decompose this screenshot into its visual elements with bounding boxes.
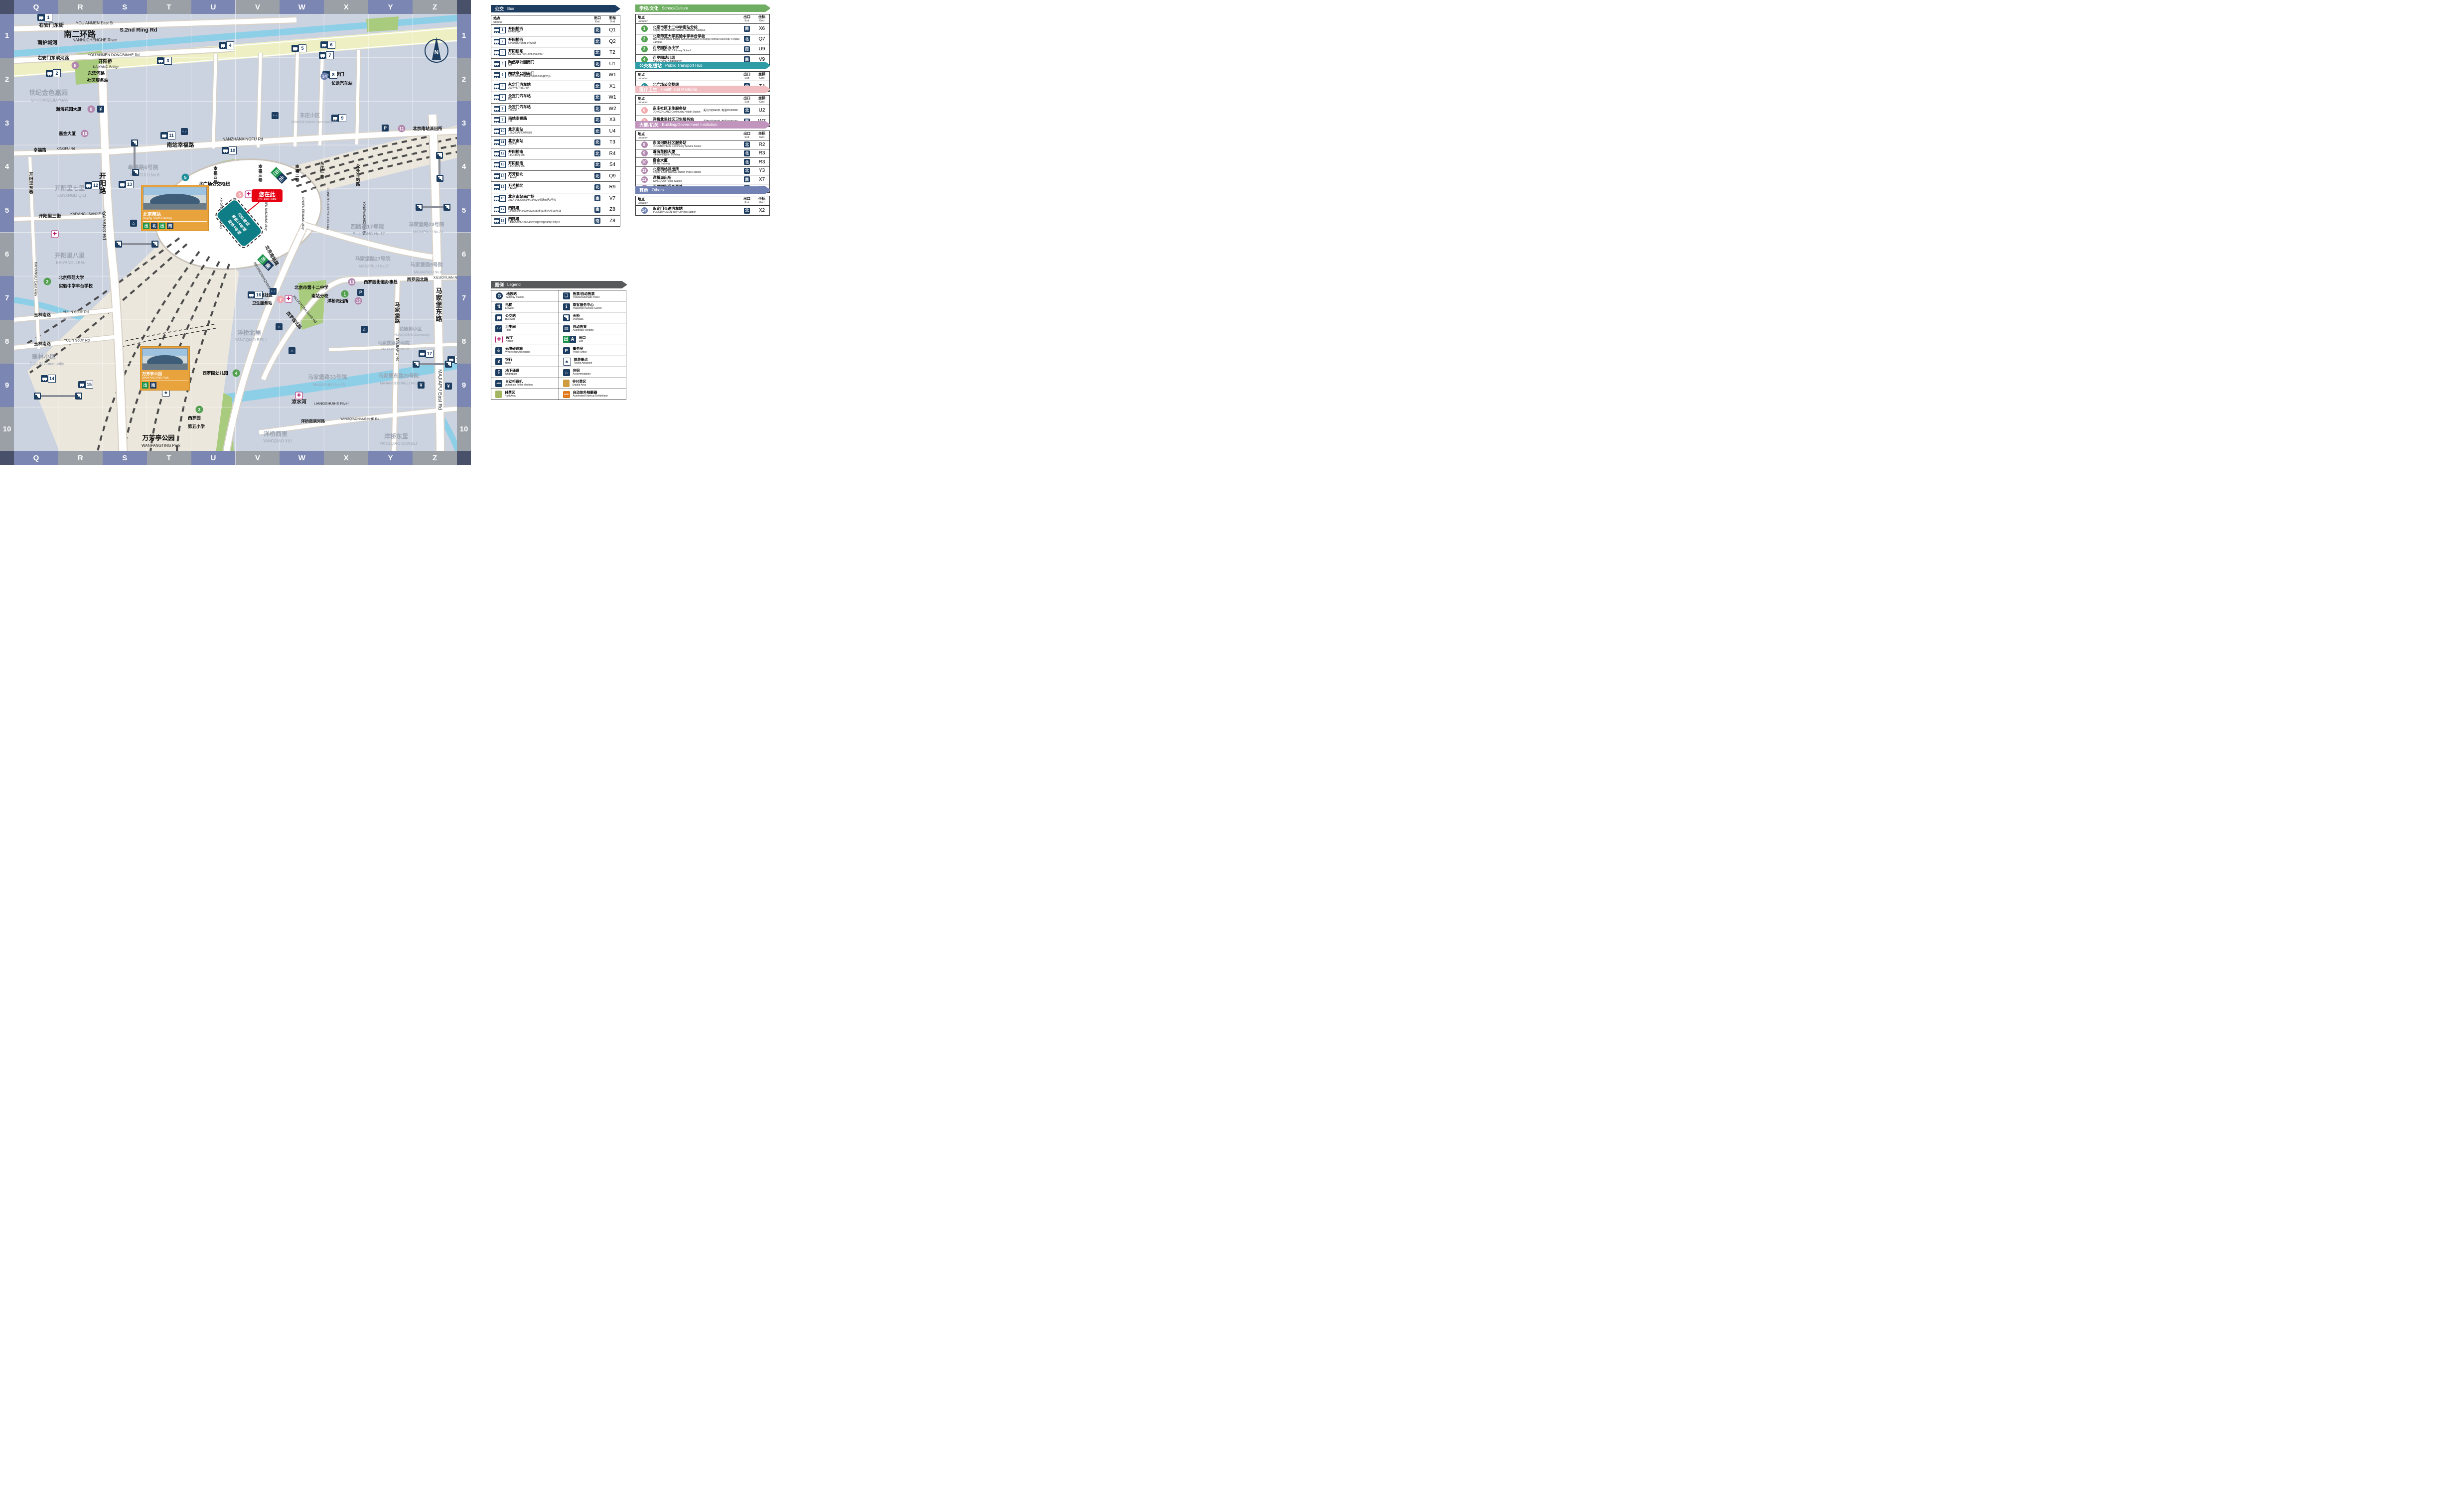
bus-routes: 106 (508, 121, 590, 124)
facility-row-2: 2北京师范大学实验中学丰台学校The Experimental Middle S… (636, 34, 769, 45)
table-school: 地点Location出口Exit坐标Grid1北京市第十二中学南站分校Beiji… (635, 14, 770, 65)
grid-letter-S-bottom: S (103, 451, 147, 465)
bus-row-number: 8 (499, 106, 506, 112)
legend-label-en: Tourist Attraction (574, 362, 592, 365)
bus-row-1: 1开阳桥西62/458/夜4北Q1 (491, 25, 620, 36)
grid-number-10-right: 10 (457, 407, 471, 451)
legend-label-en: Health (506, 340, 513, 343)
map-label: 实验中学丰台学校 (59, 284, 93, 288)
bus-stop-number: 4 (226, 41, 234, 49)
grid-code: U4 (605, 129, 620, 134)
bus-stop-number: 3 (164, 57, 172, 65)
legend-label-en: Bank (505, 362, 512, 365)
grid-code: U1 (605, 61, 620, 67)
legend-text: 出口Exit (579, 336, 586, 343)
map-label: 马家堡路8号院 (410, 263, 443, 268)
overpass-icon (443, 204, 450, 211)
grid-code: R2 (754, 142, 769, 147)
bus-glyph-icon (494, 173, 499, 179)
legend-label-en: Bus Stop (505, 318, 516, 321)
facility-name-en: XILUOYUAN No.5 Primary School (653, 50, 739, 53)
bus-routes: 381/485 (508, 143, 590, 146)
exit-direction-badge: 北 (744, 159, 750, 165)
bus-row-number: 15 (499, 184, 506, 190)
legend-label-en: Exit (579, 340, 586, 343)
map-label: 马家堡路23号院 (409, 223, 444, 228)
grid-code: Q1 (605, 27, 620, 33)
bus-title-cn: 公交 (495, 5, 504, 12)
overpass-icon (445, 361, 452, 368)
legend-text: 银行Bank (505, 358, 512, 365)
legend-label-en: Automatic Vending (573, 329, 594, 332)
medical-icon: ✚ (295, 392, 303, 400)
you-are-here-callout: 您在此 YOU ARE HERE (252, 189, 283, 202)
bus-stop-icon-6: 6 (320, 41, 335, 49)
map-label: 洋桥西里 (264, 431, 288, 437)
facility-marker: 6 (641, 107, 648, 114)
overpass-link (119, 243, 155, 245)
map-label: SHIJIJINSEJIAYUAN (31, 99, 68, 103)
grid-code: W2 (605, 106, 620, 112)
grid-number-3-left: 3 (0, 101, 14, 145)
exit-direction-badge: 南 (594, 207, 600, 213)
bus-row-number: 4 (499, 61, 506, 67)
exit-direction-badge: 北 (594, 38, 600, 44)
legend-item-elevator: ⇅电梯Elevator (491, 301, 559, 312)
bus-glyph-icon (494, 61, 499, 67)
bus-stop-icon-11: 11 (160, 132, 175, 139)
bus-row-16: 16北京南站南广场343/414/529/665/专18/夜24/机场大巴2号线… (491, 193, 620, 205)
table-others: 地点Location出口Exit坐标Grid14永定门长途汽车站YONGDING… (635, 196, 770, 216)
grid-code: V9 (754, 57, 769, 62)
grid-code: R9 (605, 184, 620, 190)
bus-routes: 106/458 (508, 110, 590, 113)
legend-item-tickets: ❏售票/自动售票Tickets/Automatic Ticket (559, 290, 626, 301)
legend-text: 警务室Police Office (573, 347, 587, 354)
map-label: S.2nd Ring Rd (120, 28, 157, 33)
bus-routes: 200外/377/381/454 (508, 87, 590, 90)
bus-stop-icon-9: 9 (331, 114, 346, 122)
grid-letter-Z-top: Z (413, 0, 457, 14)
bed-icon: ⌂ (276, 323, 283, 330)
facility-marker: 11 (641, 167, 648, 174)
section-header-building: 大厦/机关Building/Government Institution (635, 121, 770, 129)
police-icon: P (382, 125, 389, 132)
bus-row-7: 7永定门汽车站849北W1 (491, 92, 620, 104)
callout-title-cn: 万芳亭公园 (142, 371, 188, 377)
grid-number-6-left: 6 (0, 233, 14, 276)
aed-icon: AED (563, 391, 570, 398)
bus-table: 站点Station出口Exit坐标Grid1开阳桥西62/458/夜4北Q12开… (491, 15, 620, 227)
bus-row-number: 6 (499, 83, 506, 90)
bus-glyph-icon (494, 117, 499, 123)
bus-glyph-icon (419, 350, 426, 357)
map-label: MAJIAPUDONGLU No.29 (380, 382, 421, 386)
legend-label-en: Unpaid Area (573, 384, 586, 387)
map-label: 瀚海花园大厦 (56, 107, 81, 112)
legend-item-wheelchair: ♿无障碍设施Wheelchair Accessible (491, 345, 559, 356)
overpass-icon (131, 139, 138, 146)
legend-item-atm: ATM自动柜员机Automatic Teller Machine (491, 378, 559, 389)
bus-row-13: 13开阳桥南144/485/专155北S4 (491, 159, 620, 171)
map-label: MAJIAPULU No.68 (381, 348, 409, 352)
legend-item-attraction: ♣旅游景点Tourist Attraction (559, 356, 626, 367)
map-label: 幸福三巷 (258, 164, 262, 182)
bus-glyph-icon (222, 147, 229, 154)
map-label: 西罗园北路 (407, 277, 429, 282)
grid-code: X6 (754, 26, 769, 31)
grid-code: S4 (605, 162, 620, 167)
grid-letter-R-top: R (58, 0, 103, 14)
exit-direction-badge: 北 (594, 184, 600, 190)
exit-direction-badge: 北 (744, 150, 750, 156)
legend-text: 电梯Elevator (505, 303, 514, 310)
grid-code: Z8 (605, 218, 620, 224)
grid-code: X2 (754, 208, 769, 213)
map-label: 凉水河 (291, 400, 306, 405)
facility-marker: 12 (641, 176, 648, 183)
grid-number-5-right: 5 (457, 189, 471, 233)
bus-row-number: 12 (499, 150, 506, 157)
map-label: YULIN South Rd (64, 339, 90, 343)
service-icon: ℹ (563, 303, 570, 310)
map-panel: 地铁4号线 地铁14号线 北京南站 您在此 YOU ARE HERE N 出EX… (0, 0, 471, 465)
grid-number-7-right: 7 (457, 276, 471, 320)
map-label: DONGZHUANG YIXIANG Alley (326, 188, 329, 230)
bus-row-number: 5 (499, 72, 506, 78)
map-label: 长途汽车站 (331, 81, 353, 86)
facility-row-1: 1北京市第十二中学南站分校Beijing No.12 Middle School… (636, 24, 769, 34)
legend-text: 地铁站Subway Station (506, 292, 524, 299)
exit-direction-badge: 南 (744, 26, 750, 32)
bus-stop-number: 5 (298, 44, 306, 52)
map-label: 花椒树小区 (399, 327, 422, 332)
bank-icon: ¥ (445, 383, 452, 390)
bus-stop-number: 14 (48, 375, 56, 383)
bus-stop-number: 16 (255, 291, 263, 299)
grid-number-8-right: 8 (457, 320, 471, 364)
exit-direction-badge: 北 (744, 108, 750, 114)
poi-marker-10: 10 (81, 130, 89, 137)
bus-stop-number: 15 (85, 381, 93, 389)
bus-glyph-icon (494, 72, 499, 78)
bed-icon: ⌂ (563, 369, 570, 376)
bus-stop-number: 2 (53, 69, 61, 77)
grid-code: Q2 (605, 39, 620, 44)
map-label: CUILIN Community (30, 362, 64, 366)
bus-routes: 144/485/专155 (508, 154, 590, 157)
bus-glyph-icon (494, 218, 499, 224)
legend-item-subway: G地铁站Subway Station (491, 290, 559, 301)
atm-icon: ATM (495, 380, 502, 387)
toilet-icon: ♀♂ (272, 112, 279, 119)
map-label: 马家堡东路 (435, 287, 442, 322)
station-area-map-poster: 地铁4号线 地铁14号线 北京南站 您在此 YOU ARE HERE N 出EX… (0, 0, 770, 465)
poi-marker-14: 14 (321, 73, 328, 80)
overpass-icon (132, 169, 139, 176)
bus-row-number: 7 (499, 94, 506, 101)
facility-name-en: JIAJIN Building (653, 163, 739, 166)
exit-direction-badge: 南 (594, 218, 600, 224)
facility-name-en: DONGBINHELU Community Service Center (653, 145, 739, 148)
legend-label-en: Overpass (573, 318, 583, 321)
bus-glyph-icon (494, 129, 499, 134)
legend-title-cn: 图例 (495, 281, 504, 288)
bus-routes: 50/62/90/122/414/485/692/997/夜20外 (508, 76, 590, 79)
bus-glyph-icon (46, 70, 53, 77)
bus-row-number: 13 (499, 161, 506, 168)
legend-item-aed: AED自动体外除颤器Automated External Defibrillat… (559, 389, 626, 400)
bus-stop-icon-3: 3 (157, 57, 172, 65)
exit-direction-badge: 北 (594, 72, 600, 78)
bus-glyph-icon (494, 50, 499, 55)
subway-icon: G (495, 292, 503, 300)
legend-text: 自动售货Automatic Vending (573, 325, 594, 332)
exit-direction-badge: 南 (594, 195, 600, 201)
grid-code: U9 (754, 46, 769, 52)
grid-letter-W-top: W (280, 0, 324, 14)
legend-text: 付费区Paid Area (505, 391, 516, 398)
facility-row-9: 9瀚海花园大厦Hanhaihuayuan Building北R3 (636, 149, 769, 158)
unpaid-area-icon (563, 380, 570, 387)
bus-row-10: 10北京南站106/200内/200外/381北U4 (491, 126, 620, 137)
map-label: 万芳亭公园 (142, 435, 174, 441)
overpass-link (419, 206, 447, 208)
map-label: 玉林南路 (34, 342, 51, 346)
bank-icon: ¥ (97, 106, 104, 113)
map-label: 幸福路 (33, 148, 46, 152)
legend-item-bus: 公交站Bus Stop (491, 312, 559, 323)
grid-code: R3 (754, 150, 769, 156)
grid-code: Y3 (754, 168, 769, 173)
bus-station-name: 永定门汽车站 (508, 105, 590, 110)
legend-title-en: Legend (507, 282, 521, 287)
legend-label-en: Passenger Service Center (573, 307, 602, 310)
callout-title-en: Beijing South Railway (143, 217, 207, 222)
facility-row-3: 3西罗园第五小学XILUOYUAN No.5 Primary School南U9 (636, 44, 769, 55)
grid-number-1-left: 1 (0, 14, 14, 58)
facility-row-14: 14永定门长途汽车站YONGDINGMEN Inter-City Bus Sta… (636, 206, 769, 215)
map-label: 马家堡路33号院 (308, 375, 347, 381)
bus-glyph-icon (494, 207, 499, 212)
map-label: 北京南站派出所 (413, 127, 442, 131)
bus-stop-icon-14: 14 (41, 375, 56, 383)
grid-letter-T-top: T (147, 0, 191, 14)
grid-letter-Q-top: Q (14, 0, 58, 14)
grid-code: X7 (754, 177, 769, 182)
police-icon: P (357, 289, 364, 296)
poi-marker-7: 7 (277, 296, 285, 303)
bank-icon: ¥ (495, 358, 502, 365)
station-photo (143, 187, 207, 210)
bus-station-name: 陶然亭公园南门 (508, 60, 590, 65)
medical-icon: ✚ (51, 231, 59, 238)
facility-row-11: 11北京南站派出所Beijing South Railway Station P… (636, 167, 769, 176)
bus-routes: 14/40/50/66/102/343/529/夜23/夜24/专13/专18 (508, 222, 590, 225)
map-label: 马家堡东路29号院 (378, 374, 419, 379)
grid-code: X1 (605, 84, 620, 89)
facility-marker: 2 (641, 36, 648, 42)
map-label: 西罗园幼儿园 (202, 371, 228, 376)
facility-marker: 3 (641, 46, 648, 52)
map-label: 开阳里三街 (38, 214, 61, 219)
vending-icon: ▤ (563, 325, 570, 332)
grid-number-4-left: 4 (0, 145, 14, 189)
bus-glyph-icon (219, 42, 226, 49)
grid-number-2-right: 2 (457, 58, 471, 102)
map-label: 四路通17号院 (350, 225, 384, 230)
legend-label-en: Paid Area (505, 395, 516, 398)
bus-stop-number: 6 (327, 41, 335, 49)
beijing-south-railway-photo-callout: 北京南站 Beijing South Railway 出北 出南 (141, 185, 209, 231)
grid-code: V7 (605, 196, 620, 201)
grid-letter-X-bottom: X (324, 451, 368, 465)
facility-marker: 14 (641, 207, 648, 214)
bus-routes: 144/485 (508, 188, 590, 191)
attraction-icon: ♣ (563, 358, 571, 366)
legend-label-en: Wheelchair Accessible (505, 351, 530, 354)
legend-item-overpass: 天桥Overpass (559, 312, 626, 323)
map-label: XINGFU Rd (56, 147, 75, 151)
grid-code: U2 (754, 108, 769, 113)
facility-name-en: YANGQIAO Police Station (653, 180, 739, 183)
grid-letter-U-top: U (191, 0, 236, 14)
bus-column-headers: 站点Station出口Exit坐标Grid (491, 15, 620, 25)
map-label: KAIYANG Rd (101, 210, 106, 240)
bus-row-9: 9南站幸福路106北X3 (491, 115, 620, 126)
bus-glyph-icon (494, 84, 499, 89)
legend-label-en: Accommodation (573, 373, 591, 376)
grid-number-1-right: 1 (457, 14, 471, 58)
bus-row-11: 11北京南站381/485北T3 (491, 137, 620, 148)
map-border-corner (457, 451, 471, 465)
grid-number-3-right: 3 (457, 101, 471, 145)
map-label: 马家堡路 (394, 302, 399, 324)
section-header-health: 医疗卫生Health and Medicine (635, 86, 770, 93)
wheelchair-icon: ♿ (495, 347, 502, 354)
poi-marker-5: 5 (182, 174, 189, 181)
underpass-icon: ↧ (495, 369, 502, 376)
bus-stop-number: 11 (167, 132, 175, 139)
legend-item-bank: ¥银行Bank (491, 356, 559, 367)
medical-icon: ✚ (285, 295, 292, 303)
map-label: 洋桥北里 (237, 330, 261, 336)
bed-icon: ⌂ (361, 326, 368, 333)
facility-note: 距北口约640米, 电话83109908 (704, 109, 739, 112)
bus-routes: 144/485 (508, 177, 590, 180)
exit-direction-badge: 北 (594, 27, 600, 33)
bus-glyph-icon (494, 196, 499, 201)
bus-station-name: 永定门汽车站 (508, 94, 590, 99)
grid-letter-S-top: S (103, 0, 147, 14)
legend-text: 公交站Bus Stop (505, 314, 516, 321)
map-label: 南二环路 (64, 31, 96, 39)
map-label: YOU'ANMEN East St (76, 21, 114, 25)
bus-glyph-icon (78, 381, 85, 388)
bus-row-17: 17四路通14/50/66/343/529/652/665/夜23/夜24/专1… (491, 204, 620, 216)
map-label: KAIYANGLI BALI (56, 261, 86, 265)
poi-marker-2: 2 (44, 278, 51, 285)
bus-stop-icon-5: 5 (291, 44, 306, 52)
exit-direction-badge: 北 (744, 36, 750, 42)
exit-direction-badge: 北 (594, 139, 600, 145)
bus-row-number: 17 (499, 206, 506, 213)
legend-item-underpass: ↧地下通道Underpass (491, 367, 559, 378)
facility-row-8: 8东滨河路社区服务站DONGBINHELU Community Service … (636, 140, 769, 149)
bus-stop-number: 17 (426, 350, 434, 358)
legend-table: G地铁站Subway Station⇅电梯Elevator公交站Bus Stop… (491, 290, 626, 400)
overpass-icon (436, 175, 443, 182)
exit-direction-badge: 北 (594, 50, 600, 56)
bus-glyph-icon (331, 115, 338, 122)
legend-text: 住宿Accommodation (573, 369, 591, 376)
grid-letter-Q-bottom: Q (14, 451, 58, 465)
bus-stop-number: 1 (44, 13, 52, 21)
bank-icon: ¥ (418, 382, 425, 389)
legend-item-vending: ▤自动售货Automatic Vending (559, 323, 626, 334)
map-label: YANGQIAONANBINHE Rd (340, 418, 379, 421)
facility-name-en: Beijing South Railway Station Police Sta… (653, 171, 739, 174)
grid-number-8-left: 8 (0, 320, 14, 364)
legend-label-en: Police Office (573, 351, 587, 354)
map-label: 幸福二巷 (295, 164, 299, 182)
grid-number-9-right: 9 (457, 364, 471, 407)
bus-glyph-icon (160, 132, 167, 139)
grid-number-7-left: 7 (0, 276, 14, 320)
map-label: SILUTONG No.17 (353, 232, 385, 236)
grid-number-2-left: 2 (0, 58, 14, 102)
bus-routes: 343/414/529/665/专18/夜24/机场大巴2号线 (508, 199, 590, 202)
overpass-icon (413, 361, 420, 368)
bus-row-number: 2 (499, 38, 506, 45)
map-label: 马家堡路68号院 (378, 341, 410, 346)
grid-letter-T-bottom: T (147, 451, 191, 465)
map-label: MAJIAPULU No.23 (413, 231, 443, 234)
bus-row-3: 3开阳桥东50/90/122/377/414/454/692/997北T2 (491, 47, 620, 59)
callout-title-en: WANFANGTING Park (142, 377, 188, 381)
exit-direction-badge: 北 (594, 106, 600, 112)
police-icon: P (563, 347, 570, 354)
exit-direction-badge: 南 (744, 56, 750, 62)
bus-glyph-icon (494, 27, 499, 33)
map-label: YULIN South Rd (63, 311, 89, 314)
map-label: KAIYANGLI QILI (57, 194, 86, 198)
map-label: NANHUCHENGHE River (72, 38, 117, 42)
park-photo (142, 348, 188, 370)
map-label: 洋桥派出所 (327, 299, 349, 303)
bus-row-number: 10 (499, 128, 506, 135)
legend-label-en: Automated External Defibrillator (573, 395, 608, 398)
grid-letter-W-bottom: W (280, 451, 324, 465)
map-label: 开阳里东巷 (29, 172, 33, 195)
map-label: 翠林小区 (32, 354, 56, 360)
compass-north-icon: N (425, 39, 448, 63)
map-label: MAJIAPULU No.8 (414, 271, 442, 274)
bus-routes: 849 (508, 98, 590, 101)
legend-label-en: Toilet (505, 329, 516, 332)
bus-routes: 106/200内/200外/381 (508, 132, 590, 135)
exit-direction-badge: 北 (744, 141, 750, 147)
exit-direction-badge: 北 (594, 61, 600, 67)
map-label: 第五小学 (188, 424, 205, 429)
section-header-school: 学校/文化School/Culture (635, 4, 770, 12)
bus-stop-icon-12: 12 (85, 181, 100, 189)
bus-row-number: 14 (499, 173, 506, 179)
map-border-corner (0, 0, 14, 14)
wanfangting-park-photo-callout: 万芳亭公园 WANFANGTING Park 出南 (140, 346, 190, 391)
facility-marker: 10 (641, 159, 648, 165)
map-label: YOU'ANMEN DONGBINHE Rd (88, 53, 140, 57)
